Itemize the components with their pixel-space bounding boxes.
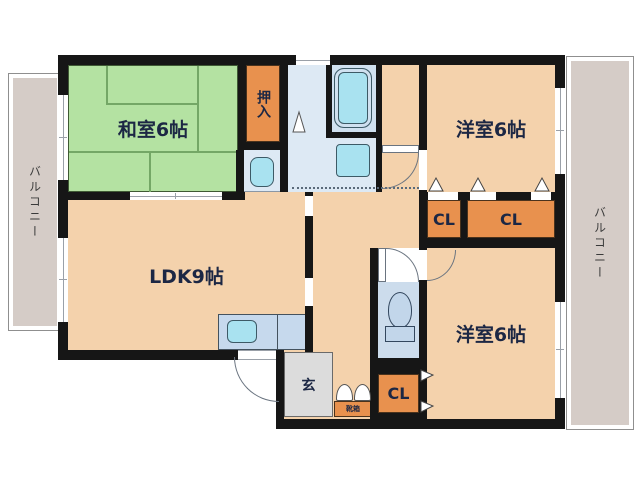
- shoebox: 靴箱: [334, 401, 372, 417]
- window-line: [296, 60, 330, 61]
- balcony-right-floor: バルコニー: [571, 61, 629, 425]
- kitchen-sink-icon: [227, 320, 257, 343]
- wall-ldk-hall: [305, 192, 313, 352]
- sliding-door-tick: [175, 193, 176, 199]
- toilet-door-leaf: [378, 248, 386, 282]
- fold-mark-cl3-top: [419, 368, 435, 383]
- bath-door-mark: [291, 110, 307, 134]
- washbasin-icon: [250, 157, 274, 187]
- opening-cl1: [428, 192, 458, 200]
- opening-yoshitsu-tr-door: [419, 150, 427, 190]
- room-washitsu: 和室6帖: [68, 65, 238, 192]
- bathtub-icon: [334, 68, 372, 128]
- opening-hall-lower: [305, 278, 313, 306]
- room-yoshitsu-tr: 洋室6帖: [427, 65, 555, 192]
- room-washitsu-label: 和室6帖: [118, 115, 188, 142]
- washing-machine-icon: [336, 144, 370, 177]
- toilet-tank-icon: [385, 326, 415, 342]
- wall-cl-divider: [461, 200, 467, 238]
- wall-bath-left: [326, 65, 332, 138]
- window-tick: [59, 279, 67, 280]
- closet-cl2: CL: [467, 200, 555, 238]
- tatami-line: [69, 151, 239, 153]
- window-line: [560, 302, 561, 398]
- tatami-line: [106, 66, 108, 103]
- window-ldk: [58, 238, 68, 322]
- wall-cl-bottom: [419, 238, 565, 248]
- fold-mark-cl3-bottom: [419, 399, 435, 414]
- window-yoshitsu-br: [555, 302, 565, 398]
- closet-oshiire-label: 押入: [256, 90, 270, 118]
- sliding-door-line: [130, 196, 222, 197]
- wall-alcove-left: [236, 150, 244, 192]
- yoshitsu-tr-door-leaf: [382, 145, 419, 153]
- opening-yoshitsu-br-door: [419, 250, 427, 280]
- opening-hall-upper: [305, 196, 313, 216]
- balcony-left-floor: バルコニー: [13, 78, 57, 326]
- window-washitsu: [58, 95, 68, 180]
- wall-toilet-left: [370, 248, 378, 358]
- window-washroom-top: [296, 55, 330, 65]
- balcony-right: バルコニー: [566, 56, 634, 430]
- entrance-door-arc: [234, 357, 279, 402]
- toilet-bowl-icon: [388, 292, 412, 328]
- opening-cl2b: [531, 192, 551, 200]
- tatami-line: [149, 151, 151, 193]
- window-line: [63, 238, 64, 322]
- wall-oshiire-bottom: [238, 142, 288, 150]
- balcony-left: バルコニー: [8, 73, 62, 331]
- washroom-boundary-dashed: [292, 187, 419, 189]
- closet-cl2-label: CL: [500, 210, 522, 229]
- counter-divider: [277, 315, 278, 349]
- genkan: 玄: [284, 352, 333, 417]
- entrance-line: [238, 350, 276, 351]
- closet-cl1-label: CL: [433, 210, 455, 229]
- wall-cl3-top: [370, 366, 419, 374]
- closet-oshiire: 押入: [246, 65, 280, 142]
- window-yoshitsu-tr: [555, 88, 565, 174]
- tatami-line: [197, 66, 199, 151]
- window-tick: [556, 130, 564, 131]
- closet-cl3: CL: [378, 374, 419, 413]
- balcony-left-label: バルコニー: [27, 165, 44, 240]
- sliding-door-washitsu: [130, 192, 222, 200]
- shoebox-label: 靴箱: [346, 404, 360, 414]
- fold-mark-cl2b: [533, 176, 551, 193]
- room-yoshitsu-tr-label: 洋室6帖: [456, 115, 526, 142]
- wall-oshiire-left: [238, 55, 246, 150]
- wall-bottom-ldk: [58, 350, 238, 360]
- window-tick: [556, 349, 564, 350]
- closet-cl1: CL: [427, 200, 461, 238]
- window-line: [560, 88, 561, 174]
- genkan-label: 玄: [302, 375, 316, 395]
- fold-mark-cl2a: [469, 176, 487, 193]
- window-tick: [59, 137, 67, 138]
- fold-mark-cl1: [427, 176, 445, 193]
- tatami-line: [106, 103, 198, 105]
- room-ldk-label: LDK9帖: [149, 262, 224, 289]
- room-yoshitsu-br: 洋室6帖: [427, 248, 555, 419]
- closet-cl3-label: CL: [388, 384, 410, 403]
- floorplan: バルコニー バルコニー LDK9帖 和室6帖 押入 洋室6帖 C: [0, 0, 640, 480]
- opening-cl2a: [470, 192, 496, 200]
- room-yoshitsu-br-label: 洋室6帖: [456, 320, 526, 347]
- wall-bottom-right: [276, 419, 565, 429]
- balcony-right-label: バルコニー: [592, 206, 609, 281]
- wall-bath-bottom: [326, 132, 376, 138]
- wall-washroom-left: [280, 55, 288, 192]
